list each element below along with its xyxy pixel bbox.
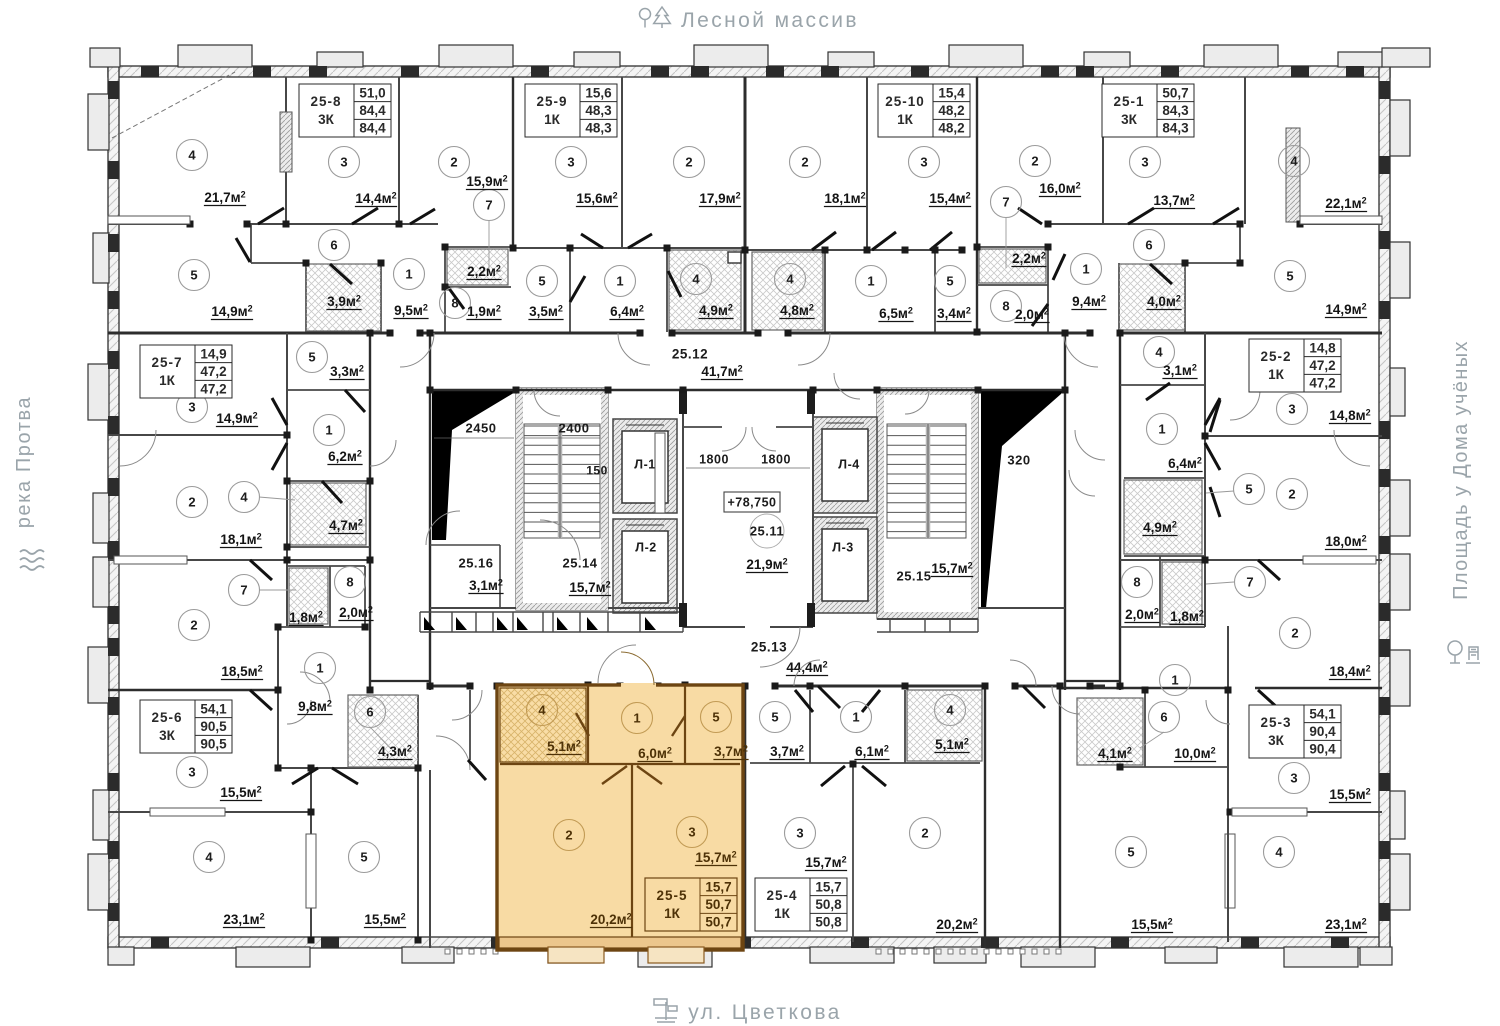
svg-text:3: 3 — [340, 155, 347, 170]
svg-text:3: 3 — [688, 825, 695, 840]
svg-text:2: 2 — [1288, 487, 1295, 502]
svg-text:6,4м2: 6,4м2 — [1168, 456, 1202, 472]
svg-text:9,5м2: 9,5м2 — [394, 303, 428, 319]
svg-text:21,7м2: 21,7м2 — [204, 190, 245, 206]
svg-text:1: 1 — [1171, 673, 1178, 688]
svg-text:3: 3 — [796, 826, 803, 841]
svg-text:48,2: 48,2 — [938, 121, 964, 136]
svg-text:320: 320 — [1007, 453, 1030, 468]
svg-text:18,0м2: 18,0м2 — [1325, 534, 1366, 550]
svg-text:5: 5 — [360, 850, 367, 865]
svg-text:2: 2 — [190, 618, 197, 633]
svg-text:2: 2 — [801, 155, 808, 170]
svg-text:4: 4 — [240, 490, 248, 505]
svg-text:1: 1 — [852, 710, 859, 725]
svg-text:+78,750: +78,750 — [727, 496, 776, 510]
svg-text:Л-1: Л-1 — [634, 458, 655, 472]
svg-text:7: 7 — [485, 198, 492, 213]
svg-text:50,7: 50,7 — [705, 915, 731, 930]
svg-text:150: 150 — [586, 464, 608, 478]
svg-text:8: 8 — [1133, 575, 1140, 590]
svg-text:6: 6 — [1160, 710, 1167, 725]
svg-text:1,8м2: 1,8м2 — [1170, 609, 1204, 625]
svg-text:25-1: 25-1 — [1113, 94, 1144, 109]
svg-text:15,4м2: 15,4м2 — [929, 191, 970, 207]
svg-text:6,0м2: 6,0м2 — [638, 746, 672, 762]
svg-text:1К: 1К — [1268, 367, 1285, 382]
svg-text:5: 5 — [1286, 269, 1293, 284]
svg-text:25.12: 25.12 — [672, 347, 708, 362]
svg-text:2: 2 — [1031, 154, 1038, 169]
svg-text:3К: 3К — [159, 728, 176, 743]
svg-text:25-2: 25-2 — [1260, 349, 1291, 364]
svg-text:21,9м2: 21,9м2 — [746, 557, 787, 573]
svg-text:25-4: 25-4 — [766, 888, 797, 903]
svg-text:1К: 1К — [544, 112, 561, 127]
svg-text:1К: 1К — [159, 373, 176, 388]
svg-text:90,4: 90,4 — [1309, 724, 1336, 739]
svg-text:47,2: 47,2 — [200, 364, 226, 379]
svg-text:6,2м2: 6,2м2 — [328, 449, 362, 465]
svg-text:3К: 3К — [1121, 112, 1138, 127]
svg-text:ул. Цветкова: ул. Цветкова — [688, 1001, 842, 1024]
svg-text:17,9м2: 17,9м2 — [699, 191, 740, 207]
svg-text:54,1: 54,1 — [1309, 707, 1336, 722]
svg-text:4: 4 — [946, 703, 954, 718]
svg-text:5,1м2: 5,1м2 — [935, 737, 969, 753]
svg-text:3: 3 — [567, 155, 574, 170]
svg-text:8: 8 — [346, 575, 353, 590]
svg-text:Площадь у Дома учёных: Площадь у Дома учёных — [1450, 340, 1472, 600]
svg-text:50,7: 50,7 — [1162, 86, 1188, 101]
svg-text:6,1м2: 6,1м2 — [855, 744, 889, 760]
svg-text:2: 2 — [1291, 626, 1298, 641]
svg-text:15,7м2: 15,7м2 — [569, 580, 610, 596]
svg-text:2,2м2: 2,2м2 — [1012, 251, 1046, 267]
svg-text:47,2: 47,2 — [1309, 358, 1335, 373]
svg-text:5: 5 — [771, 710, 778, 725]
svg-text:2: 2 — [921, 826, 928, 841]
svg-text:2: 2 — [450, 155, 457, 170]
svg-text:1К: 1К — [774, 906, 791, 921]
svg-text:9,8м2: 9,8м2 — [298, 699, 332, 715]
svg-text:15,7: 15,7 — [705, 880, 731, 895]
svg-text:4,9м2: 4,9м2 — [1143, 520, 1177, 536]
svg-text:23,1м2: 23,1м2 — [223, 912, 264, 928]
svg-text:5: 5 — [308, 350, 315, 365]
svg-text:15,7: 15,7 — [815, 880, 841, 895]
svg-text:1,9м2: 1,9м2 — [467, 304, 501, 320]
svg-text:23,1м2: 23,1м2 — [1325, 917, 1366, 933]
svg-text:9,4м2: 9,4м2 — [1072, 294, 1106, 310]
svg-text:4,9м2: 4,9м2 — [699, 303, 733, 319]
svg-text:5: 5 — [712, 710, 719, 725]
svg-text:3: 3 — [920, 155, 927, 170]
svg-text:1: 1 — [405, 267, 412, 282]
svg-text:3,9м2: 3,9м2 — [327, 294, 361, 310]
svg-text:1: 1 — [616, 274, 623, 289]
svg-text:15,5м2: 15,5м2 — [220, 785, 261, 801]
svg-text:1: 1 — [316, 661, 323, 676]
svg-text:15,6: 15,6 — [585, 86, 612, 101]
svg-text:река Протва: река Протва — [13, 396, 35, 529]
svg-text:Лесной массив: Лесной массив — [681, 9, 859, 32]
svg-text:47,2: 47,2 — [200, 382, 226, 397]
svg-text:25-10: 25-10 — [885, 94, 925, 109]
svg-text:3К: 3К — [1268, 733, 1285, 748]
svg-text:1800: 1800 — [699, 453, 729, 467]
svg-text:3,7м2: 3,7м2 — [770, 744, 804, 760]
svg-text:48,2: 48,2 — [938, 103, 964, 118]
svg-text:2: 2 — [685, 155, 692, 170]
svg-text:15,7м2: 15,7м2 — [805, 855, 846, 871]
svg-text:25-7: 25-7 — [151, 355, 182, 370]
svg-text:25.11: 25.11 — [750, 524, 784, 539]
svg-text:7: 7 — [240, 583, 247, 598]
svg-text:14,4м2: 14,4м2 — [355, 191, 396, 207]
svg-text:Л-4: Л-4 — [838, 458, 859, 472]
svg-text:2400: 2400 — [559, 421, 590, 436]
svg-text:4,8м2: 4,8м2 — [780, 303, 814, 319]
svg-text:18,1м2: 18,1м2 — [220, 532, 261, 548]
svg-text:25.13: 25.13 — [751, 640, 787, 655]
svg-text:2,0м2: 2,0м2 — [1125, 607, 1159, 623]
svg-text:4: 4 — [692, 272, 700, 287]
svg-text:15,9м2: 15,9м2 — [466, 174, 507, 190]
svg-text:20,2м2: 20,2м2 — [590, 912, 631, 928]
svg-text:3,4м2: 3,4м2 — [937, 306, 971, 322]
svg-text:25-6: 25-6 — [151, 710, 182, 725]
svg-text:7: 7 — [1002, 195, 1009, 210]
svg-text:2: 2 — [188, 495, 195, 510]
svg-text:3,1м2: 3,1м2 — [469, 578, 503, 594]
svg-text:5,1м2: 5,1м2 — [547, 739, 581, 755]
svg-text:5: 5 — [190, 268, 197, 283]
svg-text:90,4: 90,4 — [1309, 742, 1336, 757]
svg-text:4: 4 — [1155, 345, 1163, 360]
svg-text:15,7м2: 15,7м2 — [695, 850, 736, 866]
svg-text:4,3м2: 4,3м2 — [378, 744, 412, 760]
svg-text:13,7м2: 13,7м2 — [1153, 193, 1194, 209]
svg-text:3,3м2: 3,3м2 — [330, 364, 364, 380]
svg-text:3: 3 — [1141, 155, 1148, 170]
svg-text:14,8м2: 14,8м2 — [1329, 408, 1370, 424]
svg-text:2,0м2: 2,0м2 — [339, 605, 373, 621]
svg-text:25-3: 25-3 — [1260, 715, 1291, 730]
svg-text:15,5м2: 15,5м2 — [364, 912, 405, 928]
svg-text:3: 3 — [1288, 402, 1295, 417]
svg-text:25.15: 25.15 — [896, 569, 931, 584]
svg-text:4,1м2: 4,1м2 — [1098, 746, 1132, 762]
svg-text:Л-2: Л-2 — [635, 541, 656, 555]
svg-text:14,9м2: 14,9м2 — [211, 304, 252, 320]
svg-text:84,4: 84,4 — [359, 103, 386, 118]
svg-text:51,0: 51,0 — [359, 86, 385, 101]
svg-text:14,9: 14,9 — [200, 347, 226, 362]
svg-text:84,4: 84,4 — [359, 121, 386, 136]
svg-text:90,5: 90,5 — [200, 737, 227, 752]
svg-text:3: 3 — [1290, 771, 1297, 786]
svg-text:14,8: 14,8 — [1309, 341, 1336, 356]
svg-text:25-5: 25-5 — [656, 888, 687, 903]
svg-text:20,2м2: 20,2м2 — [936, 917, 977, 933]
svg-text:2450: 2450 — [466, 421, 497, 436]
svg-text:1К: 1К — [897, 112, 914, 127]
svg-text:84,3: 84,3 — [1162, 121, 1189, 136]
svg-text:47,2: 47,2 — [1309, 376, 1335, 391]
svg-text:41,7м2: 41,7м2 — [701, 364, 742, 380]
svg-text:5: 5 — [946, 274, 953, 289]
svg-text:2,2м2: 2,2м2 — [467, 264, 501, 280]
svg-text:3,5м2: 3,5м2 — [529, 304, 563, 320]
svg-text:18,4м2: 18,4м2 — [1329, 664, 1370, 680]
svg-text:15,7м2: 15,7м2 — [931, 561, 972, 577]
svg-text:1К: 1К — [664, 906, 681, 921]
svg-text:6: 6 — [1145, 238, 1152, 253]
svg-text:4: 4 — [1275, 845, 1283, 860]
svg-text:3,7м2: 3,7м2 — [714, 744, 748, 760]
svg-text:54,1: 54,1 — [200, 702, 227, 717]
svg-text:6: 6 — [366, 705, 373, 720]
svg-text:15,4: 15,4 — [938, 86, 965, 101]
svg-text:8: 8 — [451, 296, 458, 311]
svg-text:4: 4 — [538, 703, 546, 718]
svg-text:6,4м2: 6,4м2 — [610, 304, 644, 320]
svg-text:4: 4 — [188, 148, 196, 163]
svg-text:4: 4 — [1290, 154, 1298, 169]
svg-text:84,3: 84,3 — [1162, 103, 1189, 118]
svg-text:25-9: 25-9 — [536, 94, 567, 109]
svg-text:50,8: 50,8 — [815, 915, 842, 930]
svg-text:6,5м2: 6,5м2 — [879, 306, 913, 322]
svg-text:1800: 1800 — [761, 453, 791, 467]
svg-text:2: 2 — [565, 828, 572, 843]
svg-text:2,0м2: 2,0м2 — [1015, 307, 1049, 323]
svg-text:5: 5 — [538, 274, 545, 289]
svg-text:7: 7 — [1246, 575, 1253, 590]
svg-text:10,0м2: 10,0м2 — [1174, 746, 1215, 762]
svg-text:14,9м2: 14,9м2 — [216, 411, 257, 427]
svg-text:1: 1 — [1158, 422, 1165, 437]
svg-text:44,4м2: 44,4м2 — [786, 660, 827, 676]
svg-text:1,8м2: 1,8м2 — [289, 610, 323, 626]
svg-text:15,5м2: 15,5м2 — [1131, 917, 1172, 933]
svg-text:Л-3: Л-3 — [832, 541, 853, 555]
svg-text:50,7: 50,7 — [705, 897, 731, 912]
svg-text:4: 4 — [786, 272, 794, 287]
svg-text:1: 1 — [633, 711, 640, 726]
svg-text:15,6м2: 15,6м2 — [576, 191, 617, 207]
svg-text:25.16: 25.16 — [458, 556, 493, 571]
svg-text:18,1м2: 18,1м2 — [824, 191, 865, 207]
svg-text:16,0м2: 16,0м2 — [1039, 181, 1080, 197]
svg-text:4,0м2: 4,0м2 — [1147, 294, 1181, 310]
svg-text:1: 1 — [325, 423, 332, 438]
svg-text:8: 8 — [1002, 299, 1009, 314]
svg-text:3К: 3К — [318, 112, 335, 127]
svg-text:5: 5 — [1245, 482, 1252, 497]
svg-text:50,8: 50,8 — [815, 897, 842, 912]
svg-text:4,7м2: 4,7м2 — [329, 518, 363, 534]
svg-text:1: 1 — [867, 274, 874, 289]
svg-text:18,5м2: 18,5м2 — [221, 664, 262, 680]
svg-text:3,1м2: 3,1м2 — [1163, 363, 1197, 379]
svg-text:15,5м2: 15,5м2 — [1329, 787, 1370, 803]
svg-text:90,5: 90,5 — [200, 719, 227, 734]
svg-text:22,1м2: 22,1м2 — [1325, 196, 1366, 212]
svg-text:48,3: 48,3 — [585, 121, 612, 136]
svg-text:14,9м2: 14,9м2 — [1325, 302, 1366, 318]
svg-text:3: 3 — [188, 400, 195, 415]
svg-text:25-8: 25-8 — [310, 94, 341, 109]
svg-text:3: 3 — [188, 765, 195, 780]
svg-text:4: 4 — [205, 850, 213, 865]
svg-text:48,3: 48,3 — [585, 103, 612, 118]
svg-text:1: 1 — [1082, 262, 1089, 277]
svg-text:5: 5 — [1127, 845, 1134, 860]
svg-text:6: 6 — [330, 238, 337, 253]
